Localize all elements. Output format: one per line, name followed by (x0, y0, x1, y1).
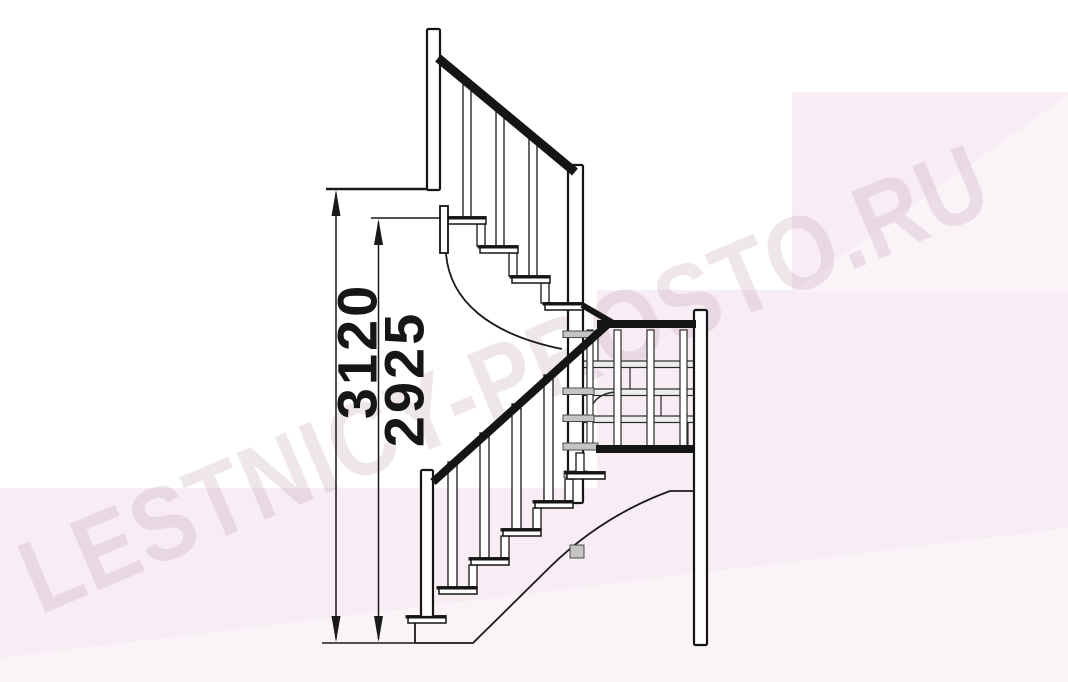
riser-support (533, 508, 541, 529)
tread (437, 587, 478, 594)
arrowhead-up-icon (374, 219, 383, 245)
tread (478, 246, 519, 253)
winder-bracket (563, 443, 598, 450)
landing-side-plate (440, 206, 448, 253)
baluster (448, 462, 457, 588)
dimension-label-upper-height: 2925 (373, 311, 436, 448)
upper-riser-supports (477, 224, 549, 303)
riser-support (509, 253, 517, 276)
upper-handrail (438, 58, 575, 172)
bottom-newel-post (421, 470, 433, 617)
tread (543, 303, 584, 310)
winder-bracket (563, 415, 594, 422)
winder-rail (583, 361, 694, 368)
winder-step-edge (596, 445, 694, 453)
tread (510, 276, 551, 283)
baluster (614, 330, 621, 446)
upper-flight (427, 29, 584, 310)
staircase-elevation-drawing: LESTNICY-PROSTO.RU 3120 2925 (0, 0, 1068, 682)
baluster (496, 111, 504, 247)
winder-rail (583, 389, 694, 396)
tread (533, 501, 574, 508)
tread (501, 529, 542, 536)
riser-support (501, 536, 509, 558)
riser-support (541, 283, 549, 303)
riser-support (576, 453, 584, 472)
riser-support (477, 224, 485, 246)
baluster (680, 330, 687, 446)
riser-support (469, 565, 477, 587)
far-post-fragment (570, 545, 584, 558)
baluster (463, 84, 471, 218)
central-post (694, 310, 707, 645)
winder-rail (583, 416, 694, 423)
tread (446, 217, 487, 224)
baluster (512, 404, 521, 530)
arrowhead-up-icon (332, 190, 341, 216)
baluster (647, 330, 654, 446)
riser-support (565, 479, 573, 501)
tread (565, 472, 606, 479)
drawing-svg: LESTNICY-PROSTO.RU 3120 2925 (0, 0, 1068, 682)
baluster (544, 375, 553, 502)
baluster (480, 433, 489, 559)
winder-bracket (563, 388, 594, 395)
baluster (529, 139, 537, 277)
tread (469, 558, 510, 565)
top-newel-post (427, 29, 440, 190)
